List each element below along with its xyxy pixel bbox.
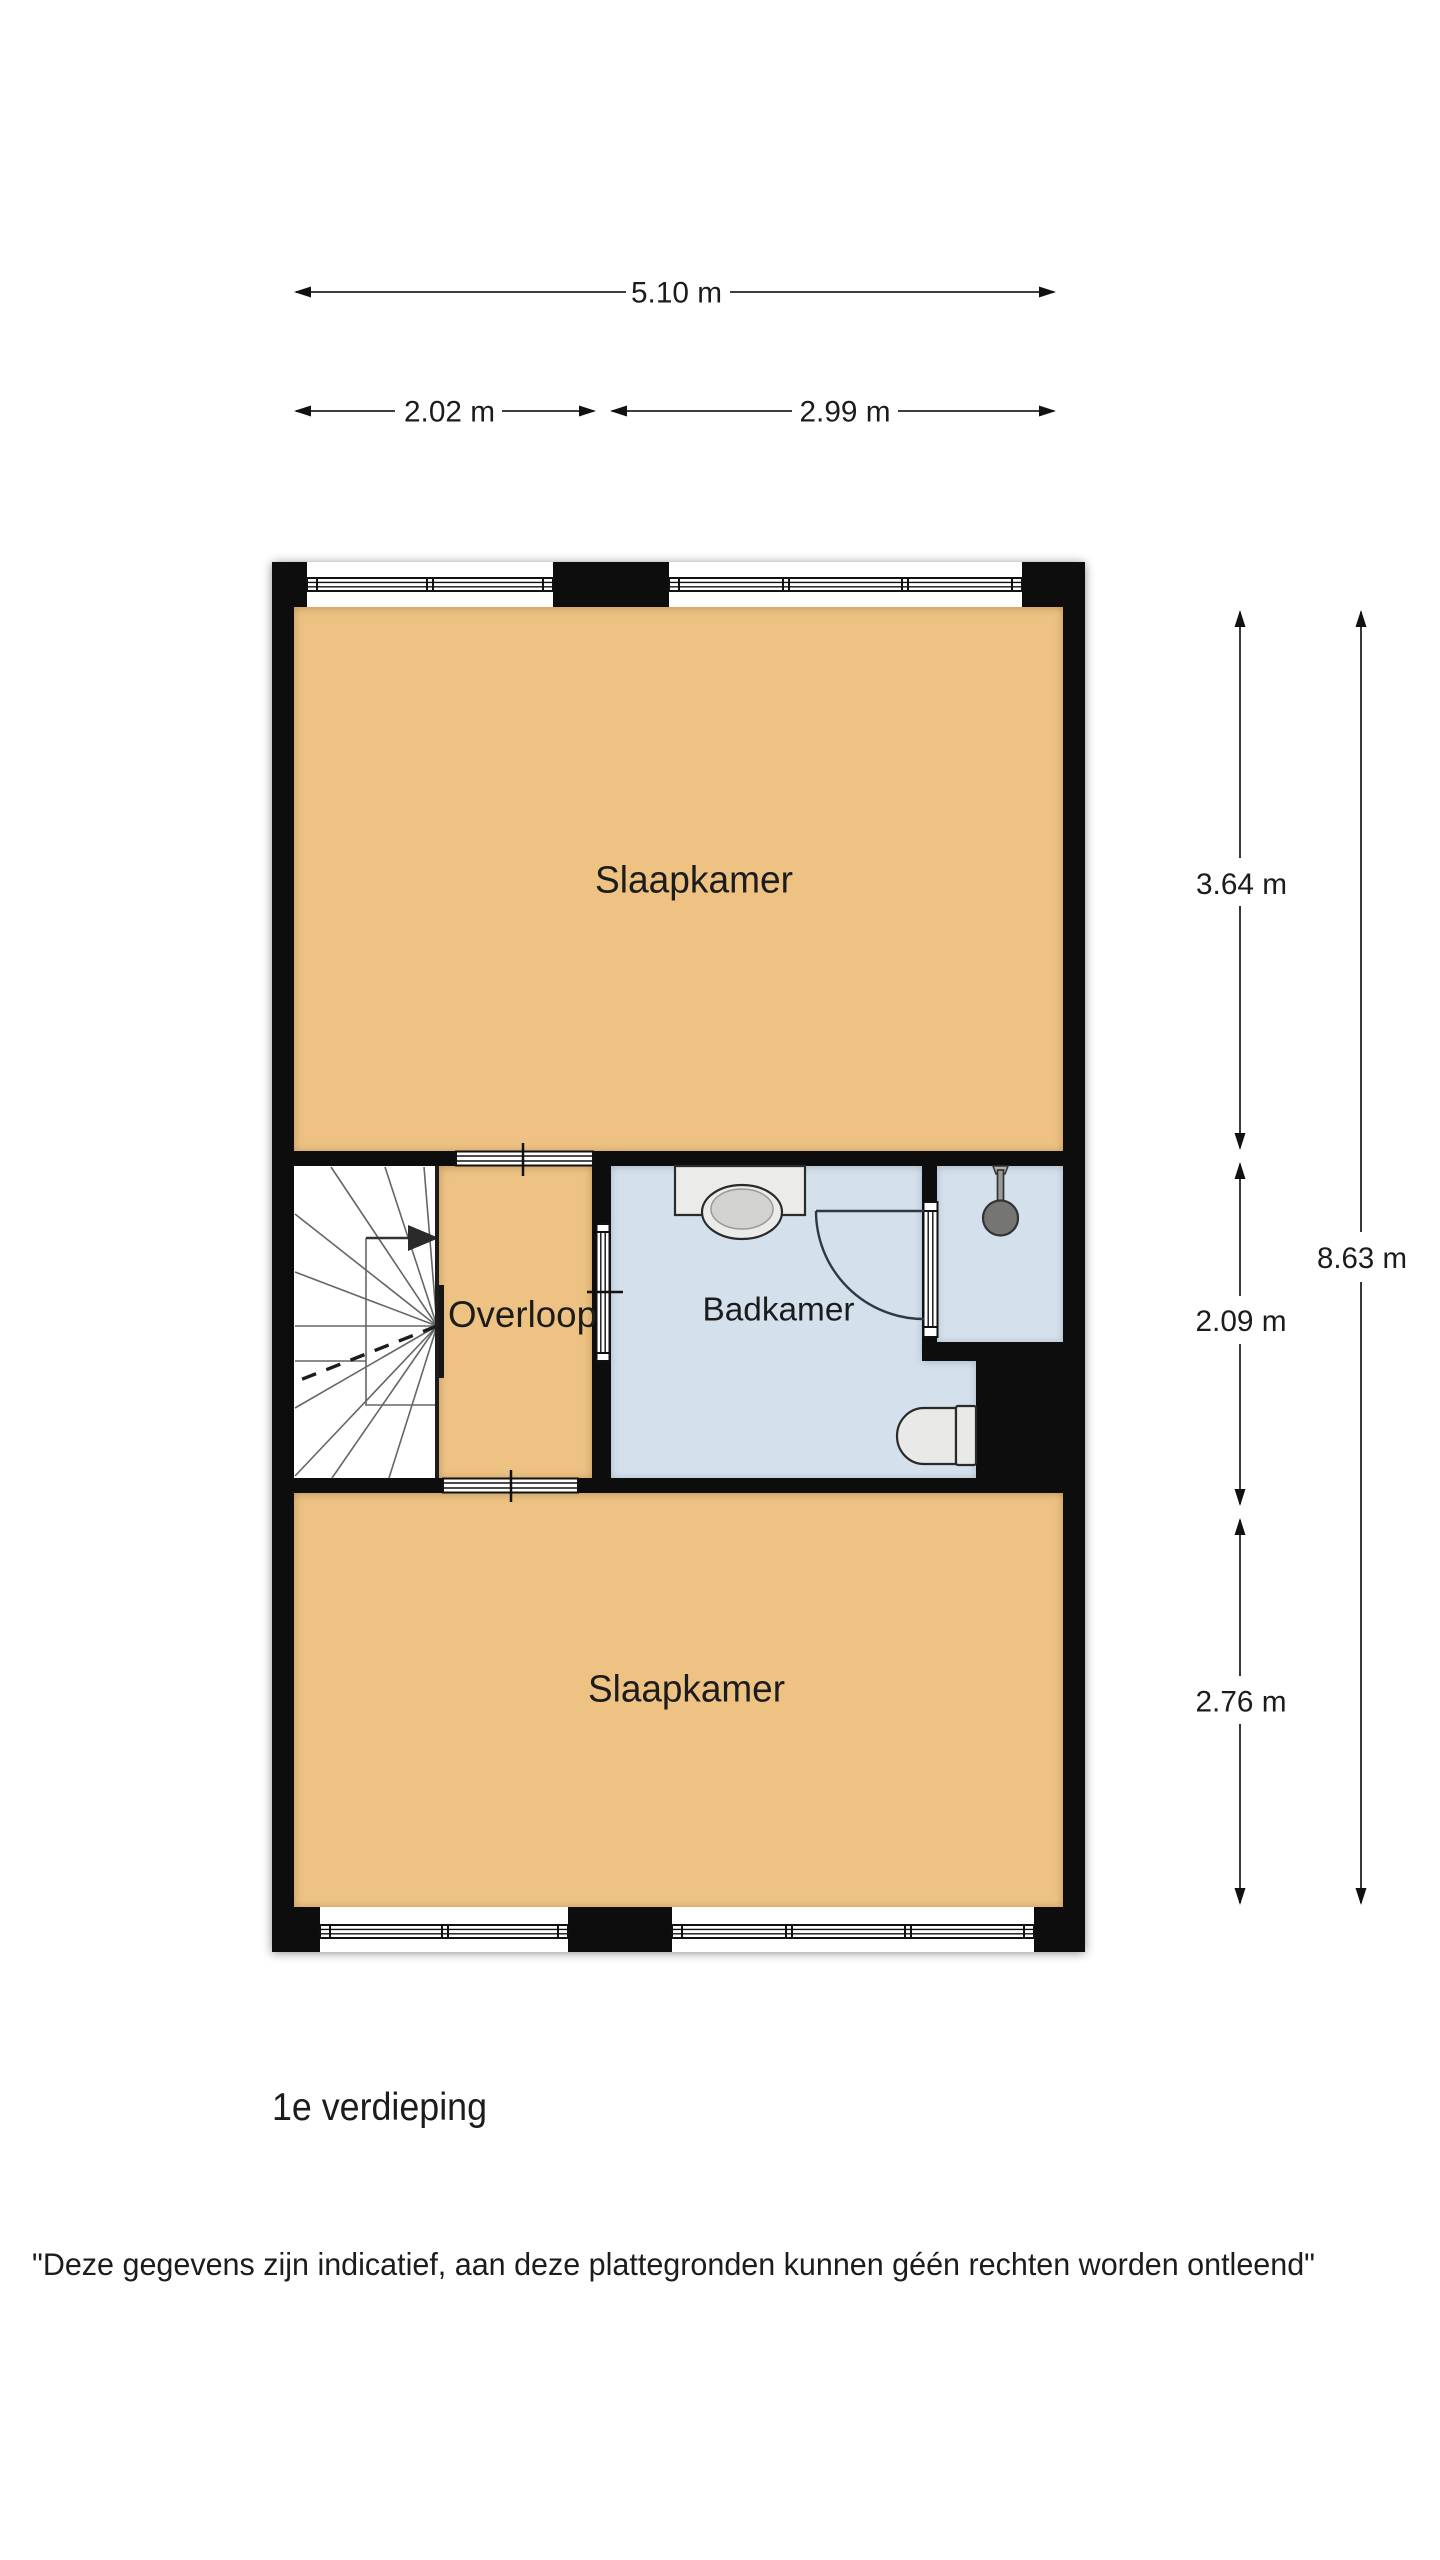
svg-text:Badkamer: Badkamer (703, 1291, 855, 1328)
svg-text:Overloop: Overloop (448, 1294, 597, 1335)
svg-text:1e verdieping: 1e verdieping (272, 2086, 487, 2129)
svg-text:2.76 m: 2.76 m (1196, 1686, 1287, 1719)
svg-text:3.64 m: 3.64 m (1196, 868, 1287, 901)
svg-text:2.02 m: 2.02 m (404, 396, 495, 429)
svg-text:2.09 m: 2.09 m (1196, 1305, 1287, 1338)
svg-text:"Deze gegevens zijn indicatief: "Deze gegevens zijn indicatief, aan deze… (32, 2246, 1315, 2282)
svg-text:Slaapkamer: Slaapkamer (595, 860, 793, 902)
svg-text:2.99 m: 2.99 m (800, 396, 891, 429)
svg-text:8.63 m: 8.63 m (1317, 1242, 1407, 1275)
svg-text:5.10 m: 5.10 m (631, 277, 722, 310)
svg-text:Slaapkamer: Slaapkamer (588, 1669, 785, 1711)
